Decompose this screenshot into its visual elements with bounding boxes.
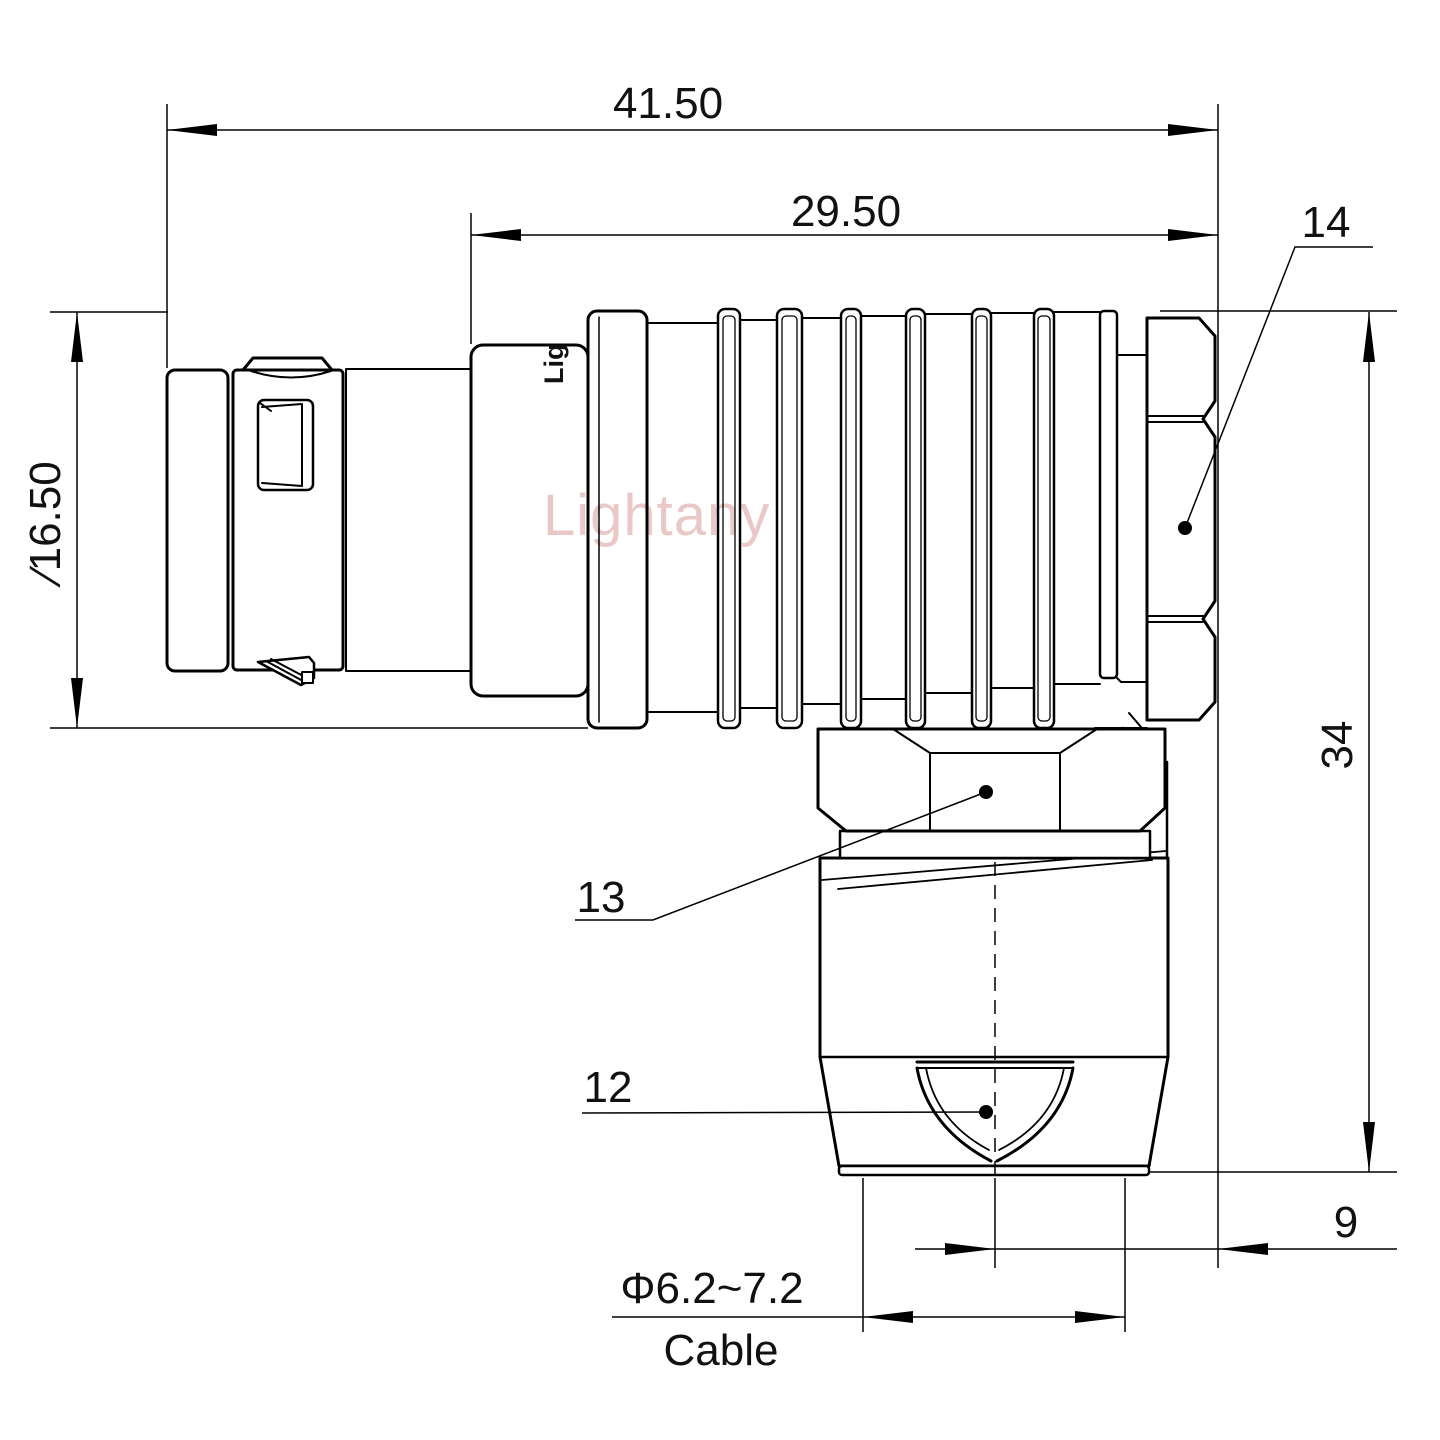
dim-text-diameter: ∕16.50	[21, 461, 70, 587]
clamp-ring	[840, 831, 1150, 858]
front-ring	[167, 370, 228, 671]
connector-drawing-svg: Lig	[0, 0, 1440, 1440]
gland-bottom-rim	[839, 1166, 1149, 1175]
top-tab	[243, 358, 332, 370]
callout-text-13: 13	[577, 873, 626, 922]
shell-neck	[346, 369, 471, 671]
backnut-hex	[818, 729, 1165, 831]
part-geometry	[167, 309, 1215, 1175]
callout-text-14: 14	[1302, 198, 1351, 247]
bottom-tab-notch	[302, 672, 313, 683]
leader-14-dot	[1178, 521, 1192, 535]
dim-text-overall: 41.50	[613, 79, 723, 128]
coupling-hex	[1147, 318, 1215, 720]
drawing-canvas: Lig	[0, 0, 1440, 1440]
dimension-texts: 41.50 29.50 ∕16.50 34 14 13 12 9 Φ6.2~7.…	[21, 79, 1362, 1375]
dim-text-offset: 9	[1334, 1198, 1358, 1247]
spacer-washer	[1100, 311, 1117, 678]
dim-text-section: 29.50	[791, 187, 901, 236]
dim-text-cable-word: Cable	[664, 1326, 779, 1375]
dim-text-height: 34	[1313, 721, 1362, 770]
bellows-ribs	[718, 309, 1054, 728]
leader-12	[582, 1112, 986, 1113]
keyway-window	[258, 400, 313, 490]
dim-text-cable-diameter: Φ6.2~7.2	[620, 1264, 803, 1313]
grip-shell	[471, 345, 588, 696]
bellows-rib-inner-lines	[723, 316, 1050, 721]
leader-12-dot	[979, 1105, 993, 1119]
washer-recess	[1117, 355, 1147, 682]
leader-13-dot	[979, 785, 993, 799]
callout-text-12: 12	[584, 1063, 633, 1112]
collar	[588, 311, 647, 728]
body-marking-text: Lig	[539, 344, 569, 385]
gland-body	[820, 858, 1168, 1166]
